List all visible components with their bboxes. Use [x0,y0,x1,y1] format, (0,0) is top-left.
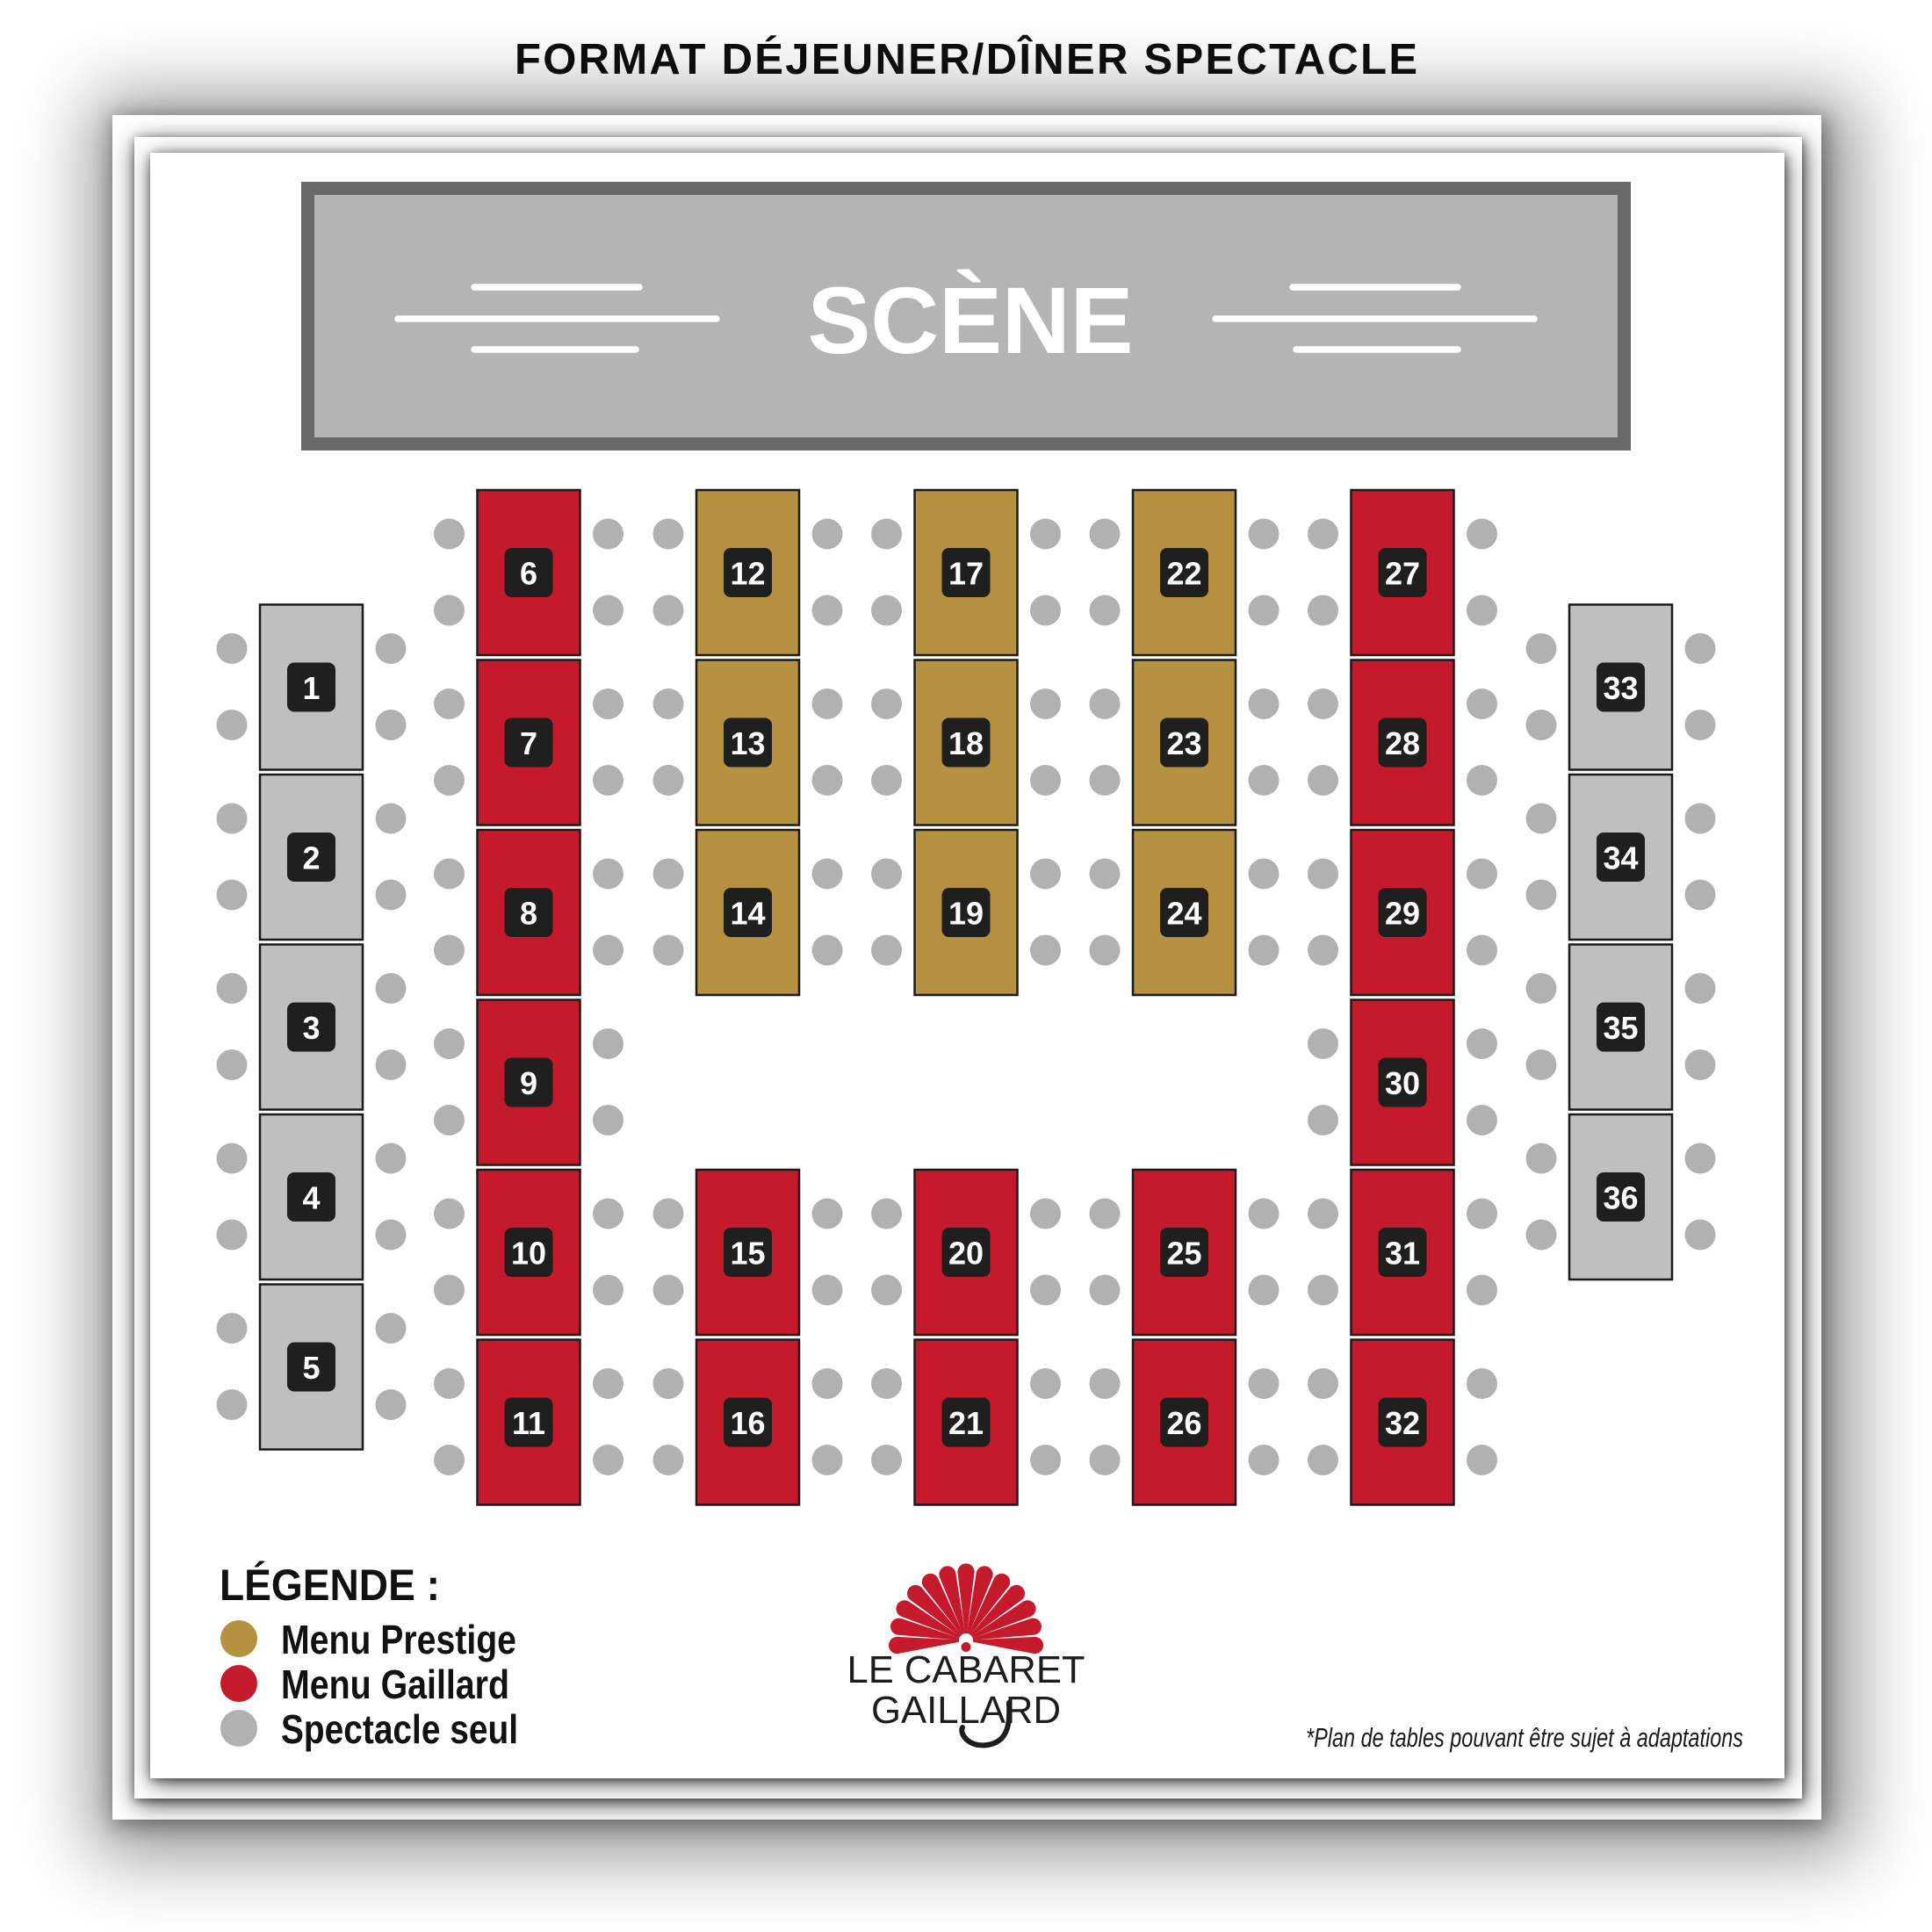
svg-text:28: 28 [1385,725,1420,761]
svg-text:5: 5 [302,1350,320,1386]
svg-text:17: 17 [948,556,984,592]
svg-text:19: 19 [948,896,984,932]
svg-text:Spectacle seul: Spectacle seul [281,1706,518,1752]
svg-text:6: 6 [520,556,537,592]
svg-text:22: 22 [1166,556,1201,592]
svg-text:20: 20 [948,1236,984,1272]
svg-text:LÉGENDE :: LÉGENDE : [220,1561,440,1610]
svg-text:18: 18 [948,725,984,761]
svg-text:GAILLARD: GAILLARD [871,1689,1061,1732]
svg-text:35: 35 [1603,1010,1638,1046]
svg-text:21: 21 [948,1405,984,1441]
svg-text:25: 25 [1166,1236,1201,1272]
svg-text:LE CABARET: LE CABARET [847,1648,1085,1691]
svg-text:13: 13 [730,725,765,761]
svg-text:SCÈNE: SCÈNE [808,267,1134,373]
svg-text:8: 8 [520,896,537,932]
svg-text:26: 26 [1166,1405,1201,1441]
svg-text:2: 2 [302,840,320,876]
svg-text:33: 33 [1603,670,1638,706]
svg-text:34: 34 [1603,840,1638,876]
svg-text:FORMAT DÉJEUNER/DÎNER SPECTACL: FORMAT DÉJEUNER/DÎNER SPECTACLE [515,35,1417,83]
svg-text:Menu Gaillard: Menu Gaillard [281,1662,509,1707]
svg-text:27: 27 [1385,556,1420,592]
svg-text:29: 29 [1385,896,1420,932]
svg-text:36: 36 [1603,1180,1638,1216]
svg-text:14: 14 [730,896,765,932]
svg-text:3: 3 [302,1010,320,1046]
svg-text:16: 16 [730,1405,765,1441]
svg-text:Menu Prestige: Menu Prestige [281,1617,516,1662]
svg-text:31: 31 [1385,1236,1420,1272]
svg-text:32: 32 [1385,1405,1420,1441]
svg-text:1: 1 [302,670,320,706]
svg-text:7: 7 [520,725,537,761]
svg-text:15: 15 [730,1236,765,1272]
svg-text:23: 23 [1166,725,1201,761]
svg-text:30: 30 [1385,1065,1420,1101]
svg-text:12: 12 [730,556,765,592]
svg-text:*Plan de tables pouvant être s: *Plan de tables pouvant être sujet à ada… [1306,1722,1743,1753]
svg-text:9: 9 [520,1065,537,1101]
svg-text:10: 10 [511,1236,546,1272]
svg-text:11: 11 [512,1405,545,1441]
svg-text:4: 4 [302,1180,320,1216]
svg-text:24: 24 [1166,896,1201,932]
